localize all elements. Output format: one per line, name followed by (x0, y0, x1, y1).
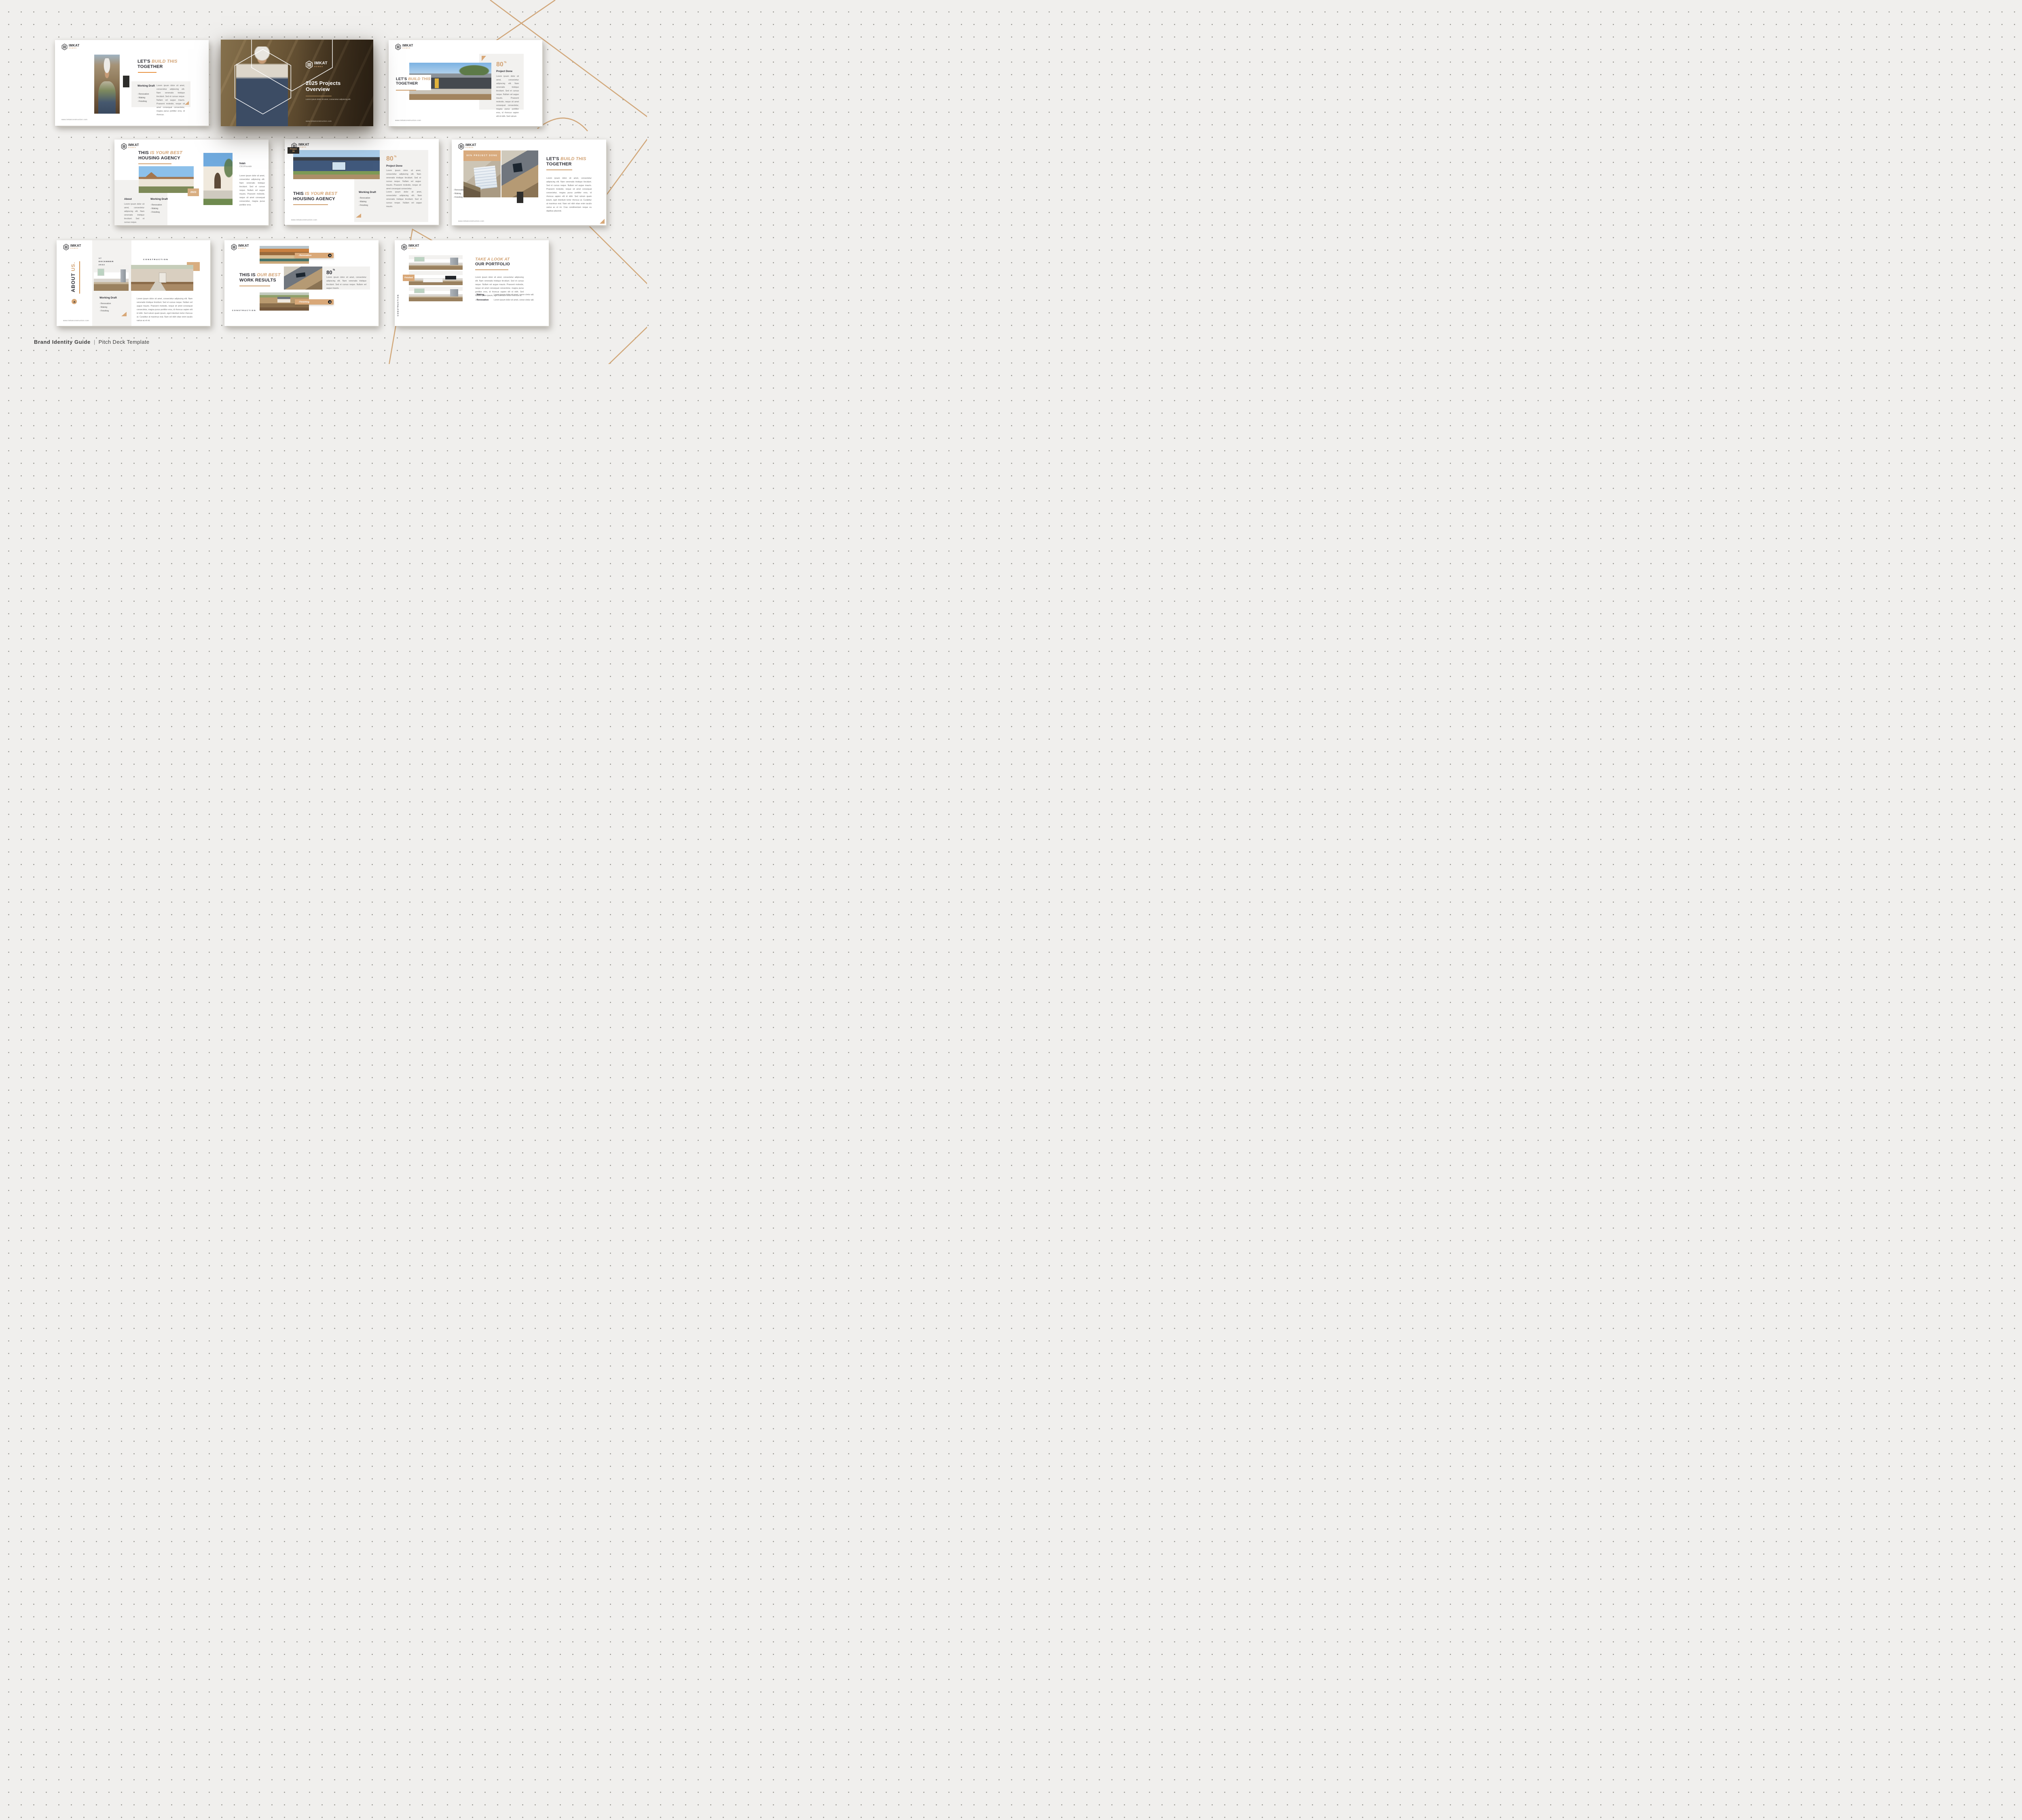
photo-kitchen-interior (94, 265, 129, 291)
photo-construction-worker (94, 55, 120, 114)
person-body: Lorem ipsum dolor sit amet, consectetur … (239, 174, 265, 207)
stat-body: Lorem ipsum dolor sit amet, consectetur … (386, 169, 421, 191)
play-button (328, 300, 332, 304)
draft-item: - Finishing (150, 211, 160, 214)
finishing-tag-bar: - Finishing (295, 299, 334, 305)
imkat-logo-icon (305, 61, 313, 69)
imkat-logo-icon (63, 244, 69, 250)
corner-triangle (600, 219, 605, 224)
imkat-logo: IMKATHOMES (305, 61, 328, 69)
brand-name: IMKAT (402, 44, 413, 47)
cover-subtitle: Lorem ipsum dolor sit amet, consectetur … (306, 98, 366, 101)
slide-project-done-house: IMKATHOMES 80% Project Done Lorem ipsum … (389, 40, 542, 126)
brand-name: IMKAT (238, 244, 249, 248)
photo-aerial-solar-house (501, 150, 538, 197)
dark-accent-rect (517, 192, 523, 203)
draft-item: - Making (137, 97, 145, 99)
renovation-row-text: Lorem ipsum dolor sit amet, conse ctetur… (494, 299, 534, 301)
brand-tagline: HOMES (238, 248, 249, 250)
imkat-logo-icon (395, 44, 401, 50)
slide-housing-agency-about: IMKATHOMES THIS IS YOUR BEST HOUSING AGE… (114, 140, 269, 225)
photo-tall-house (203, 153, 233, 205)
panel-body-text: Lorem ipsum dolor sit amet, consectetur … (157, 84, 185, 117)
play-icon (330, 255, 331, 256)
renovation-row-label: - Renovation (475, 299, 489, 301)
body-text: Lorem ipsum dolor sit amet, consectetur … (546, 177, 592, 213)
slide-title: THIS IS YOUR BEST HOUSING AGENCY (293, 191, 337, 202)
photo-kitchen-2 (409, 287, 463, 301)
draft-item: - Renovation (453, 189, 465, 191)
slide-title: TAKE A LOOK AT OUR PORTFOLIO (475, 257, 510, 267)
brand-tagline: HOMES (408, 248, 419, 250)
finished-badge: Finished (403, 275, 415, 281)
slide-title: LET'S BUILD THIS TOGETHER (396, 77, 431, 86)
stat-block: 80% (326, 269, 335, 276)
photo-living-room (409, 271, 463, 285)
year-badge: 2023 (188, 188, 199, 196)
renovation-tag-bar: - Renovation (295, 253, 334, 258)
draft-item: - Making (453, 193, 461, 195)
stat-block: 80% (496, 61, 507, 68)
construction-label: CONSTRUCTION (143, 259, 169, 261)
slide-project-34: IMKATHOMES Project 34 80% Project Done L… (285, 139, 439, 225)
slide-intro-build-together: IMKATHOMES LET'S BUILD THIS TOGETHER Wor… (55, 40, 209, 126)
brand-tagline: HOMES (128, 147, 139, 149)
imkat-logo-icon (231, 244, 237, 250)
brand-name: IMKAT (128, 144, 139, 147)
draft-item: - Making (150, 207, 158, 210)
draft-item: - Renovation (359, 197, 370, 199)
imkat-logo: IMKATHOMES (401, 244, 419, 250)
draft-item: - Finishing (99, 310, 109, 312)
brand-tagline: HOMES (69, 47, 80, 49)
up-triangle-icon (73, 301, 76, 303)
working-draft-heading: Working Draft (150, 198, 168, 201)
slide-cover-2025-projects: IMKATHOMES 2025 Projects Overview Lorem … (221, 40, 373, 126)
dark-accent-rect (123, 76, 129, 87)
brand-tagline: HOMES (70, 248, 81, 250)
imkat-logo: IMKATHOMES (395, 44, 413, 50)
brand-tagline: HOMES (314, 66, 328, 68)
photo-aerial-solar-house (284, 267, 322, 290)
brand-tagline: HOMES (402, 47, 413, 49)
draft-item: - Finishing (359, 204, 368, 207)
stat-label: Project Done (496, 70, 512, 73)
cover-title: 2025 Projects Overview (306, 80, 341, 93)
imkat-logo: IMKATHOMES (61, 44, 80, 50)
draft-item: - Finishing (137, 100, 147, 103)
photo-blue-house (293, 150, 380, 179)
website-url: www.imkatconstruction.com (458, 220, 484, 222)
website-url: www.imkatconstruction.com (63, 320, 89, 322)
website-url: www.imkatconstruction.com (306, 120, 332, 122)
website-url: www.imkatconstruction.com (291, 219, 317, 221)
progress-band: 80% PROJECT DONE (463, 150, 501, 161)
draft-item: - Renovation (150, 204, 162, 206)
construction-vertical-label: CONSTRUCTION (397, 290, 399, 321)
project-number-badge: Project 34 (288, 147, 299, 154)
play-button (328, 254, 332, 257)
draft-item: - Making (359, 201, 366, 203)
title-underline (396, 90, 416, 91)
stat-body: Lorem ipsum dolor sit amet, consectetur … (496, 75, 519, 119)
about-us-vertical-title: ABOUT US. (70, 255, 76, 299)
title-underline (239, 286, 270, 286)
brand-name: IMKAT (314, 61, 328, 66)
imkat-logo: IMKATHOMES (458, 143, 476, 150)
imkat-logo-icon (458, 143, 464, 150)
photo-two-houses (139, 166, 194, 193)
draft-item: - Renovation (99, 303, 111, 305)
title-underline (138, 163, 171, 164)
title-underline (475, 269, 508, 270)
about-body: Lorem ipsum dolor sit amet, consectetur … (124, 203, 144, 224)
pitch-deck-template-showcase: { "page": { "caption": { "left": "Brand … (0, 0, 647, 364)
person-name: Ivan (239, 161, 245, 165)
play-icon (330, 301, 331, 303)
slide-title: LET'S BUILD THIS TOGETHER (137, 59, 178, 70)
person-role: CEO/Founder (239, 165, 252, 168)
photo-cover-worker-site (221, 40, 373, 126)
imkat-logo: IMKATHOMES (63, 244, 81, 250)
website-url: www.imkatconstruction.com (395, 119, 421, 121)
draft-body: Lorem ipsum dolor sit amet, consectetur … (386, 190, 422, 209)
imkat-logo-icon (401, 244, 407, 250)
imkat-logo-icon (121, 143, 127, 150)
cover-underline (306, 96, 332, 96)
slide-title: THIS IS YOUR BEST HOUSING AGENCY (138, 150, 182, 161)
title-underline (293, 204, 328, 205)
about-heading: About (124, 198, 132, 201)
slide-work-results: IMKATHOMES - Renovation 80% Lorem ipsum … (224, 240, 379, 326)
imkat-logo: IMKATHOMES (121, 143, 139, 150)
brand-name: IMKAT (408, 244, 419, 248)
brand-name: IMKAT (70, 244, 81, 248)
slide-title: THIS IS OUR BEST WORK RESULTS (239, 273, 281, 283)
stat-label: Project Done (386, 165, 402, 167)
working-draft-heading: Working Draft (99, 296, 117, 299)
working-draft-heading: Working Draft (137, 85, 155, 87)
working-draft-heading: Working Draft (359, 191, 376, 194)
making-row-label: - Making (475, 294, 484, 296)
photo-beige-house (131, 265, 193, 291)
slide-title: LET'S BUILD THIS TOGETHER (546, 157, 586, 167)
imkat-logo: IMKATHOMES (231, 244, 249, 250)
brand-name: IMKAT (298, 143, 309, 146)
slide-about-us: IMKATHOMES ABOUT US. 17 DECEMBER 2022 Wo… (57, 240, 210, 326)
draft-item: - Making (99, 306, 107, 309)
draft-item: - Renovation (137, 93, 149, 95)
title-underline (546, 169, 572, 170)
photo-kitchen-1 (409, 255, 463, 270)
photo-blueprint-worker (463, 161, 501, 197)
brand-name: IMKAT (465, 144, 476, 147)
website-url: www.imkatconstruction.com (61, 119, 87, 121)
draft-item: - Finishing (453, 196, 463, 199)
slide-build-together-progress: IMKATHOMES 80% PROJECT DONE - Renovation… (452, 140, 606, 225)
up-arrow-circle-icon (72, 299, 77, 304)
slide-portfolio: IMKATHOMES Finished TAKE A LOOK AT OUR P… (395, 240, 549, 326)
body-text: Lorem ipsum dolor sit amet, consectetur … (137, 297, 192, 323)
construction-label: CONSTRUCTION (232, 309, 256, 311)
brand-name: IMKAT (69, 44, 80, 47)
vertical-accent-line (79, 261, 80, 294)
title-underline (138, 72, 157, 73)
stat-body: Lorem ipsum dolor sit amet, consectetur … (326, 276, 366, 290)
brand-tagline: HOMES (298, 146, 309, 148)
stat-block: 80% (386, 155, 397, 163)
imkat-logo-icon (61, 44, 68, 50)
making-row-text: Lorem ipsum dolor sit amet, conse ctetur… (494, 294, 534, 296)
brand-tagline: HOMES (465, 147, 476, 149)
